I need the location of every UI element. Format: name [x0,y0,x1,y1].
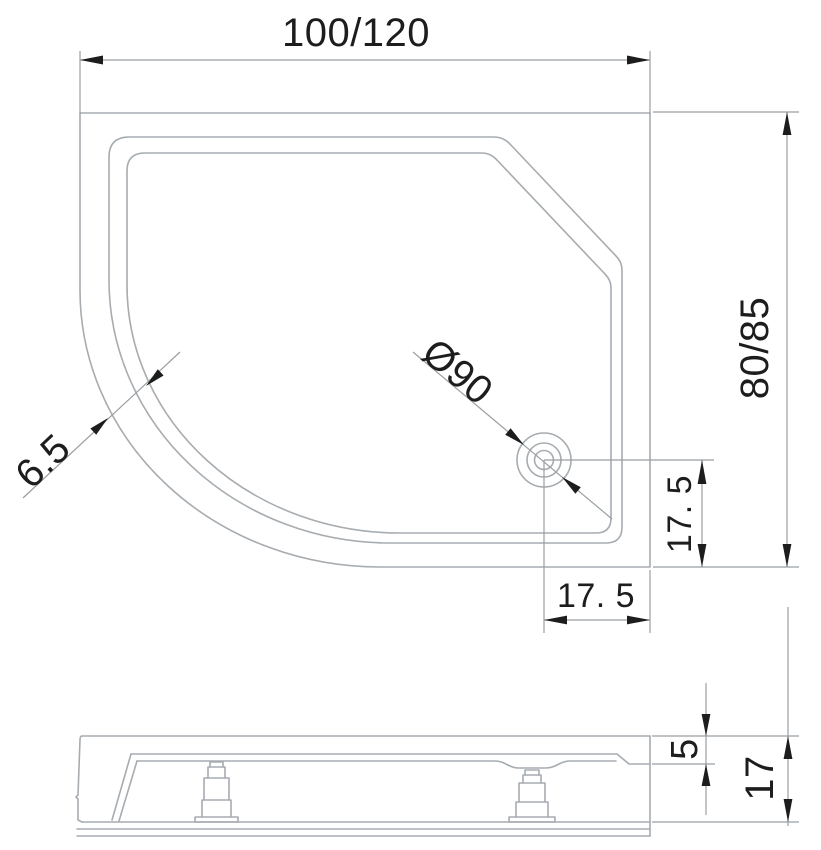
basin-rim-outer-line [109,137,622,543]
dim-rim-height-label: 5 [664,738,706,760]
dimension-drain-offset-right: 17. 5 [544,460,650,633]
adjustable-foot-right [509,770,555,822]
arrowhead-top [784,736,793,759]
dim-depth-label: 80/85 [733,297,777,400]
arrowhead-upper [505,428,524,445]
arrowhead-upper [146,369,164,386]
arrowhead-right [627,56,650,65]
technical-drawing: 100/120 80/85 Ø90 17. 5 17. [0,0,821,850]
dim-width-label: 100/120 [282,11,430,55]
section-left-edge [76,736,82,822]
arrowhead-top [702,714,711,736]
dimension-drain-diameter: Ø90 [413,330,612,519]
foot-outline [195,762,238,822]
dim-drain-diameter-label: Ø90 [414,330,501,413]
tray-outer-outline [80,113,650,567]
section-view [76,736,650,836]
dim-corner-rim-label: 6.5 [7,426,79,497]
arrowhead-bottom [784,799,793,822]
section-left-inner-slope-2 [119,761,137,821]
arrowhead-top [783,112,792,135]
adjustable-foot-left [195,762,238,822]
section-inner-rim-upper [131,754,650,764]
foot-step-lines [516,775,548,817]
arrowhead-left [80,56,103,65]
dim-drain-offset-bottom-label: 17. 5 [661,475,699,553]
foot-step-lines [202,767,231,817]
dim-total-height-label: 17 [738,755,782,801]
dimension-drain-offset-bottom: 17. 5 [544,460,714,567]
dimension-total-height: 17 [652,607,799,826]
arrowhead-left [544,616,567,625]
arrowhead-bottom [783,544,792,567]
drawing-canvas: 100/120 80/85 Ø90 17. 5 17. [0,0,821,850]
arrowhead-bottom [702,764,711,786]
top-view [80,113,650,567]
dim-drain-offset-right-label: 17. 5 [557,577,635,615]
arrowhead-right [627,616,650,625]
foot-outline [509,770,555,822]
dimension-width: 100/120 [80,11,650,114]
